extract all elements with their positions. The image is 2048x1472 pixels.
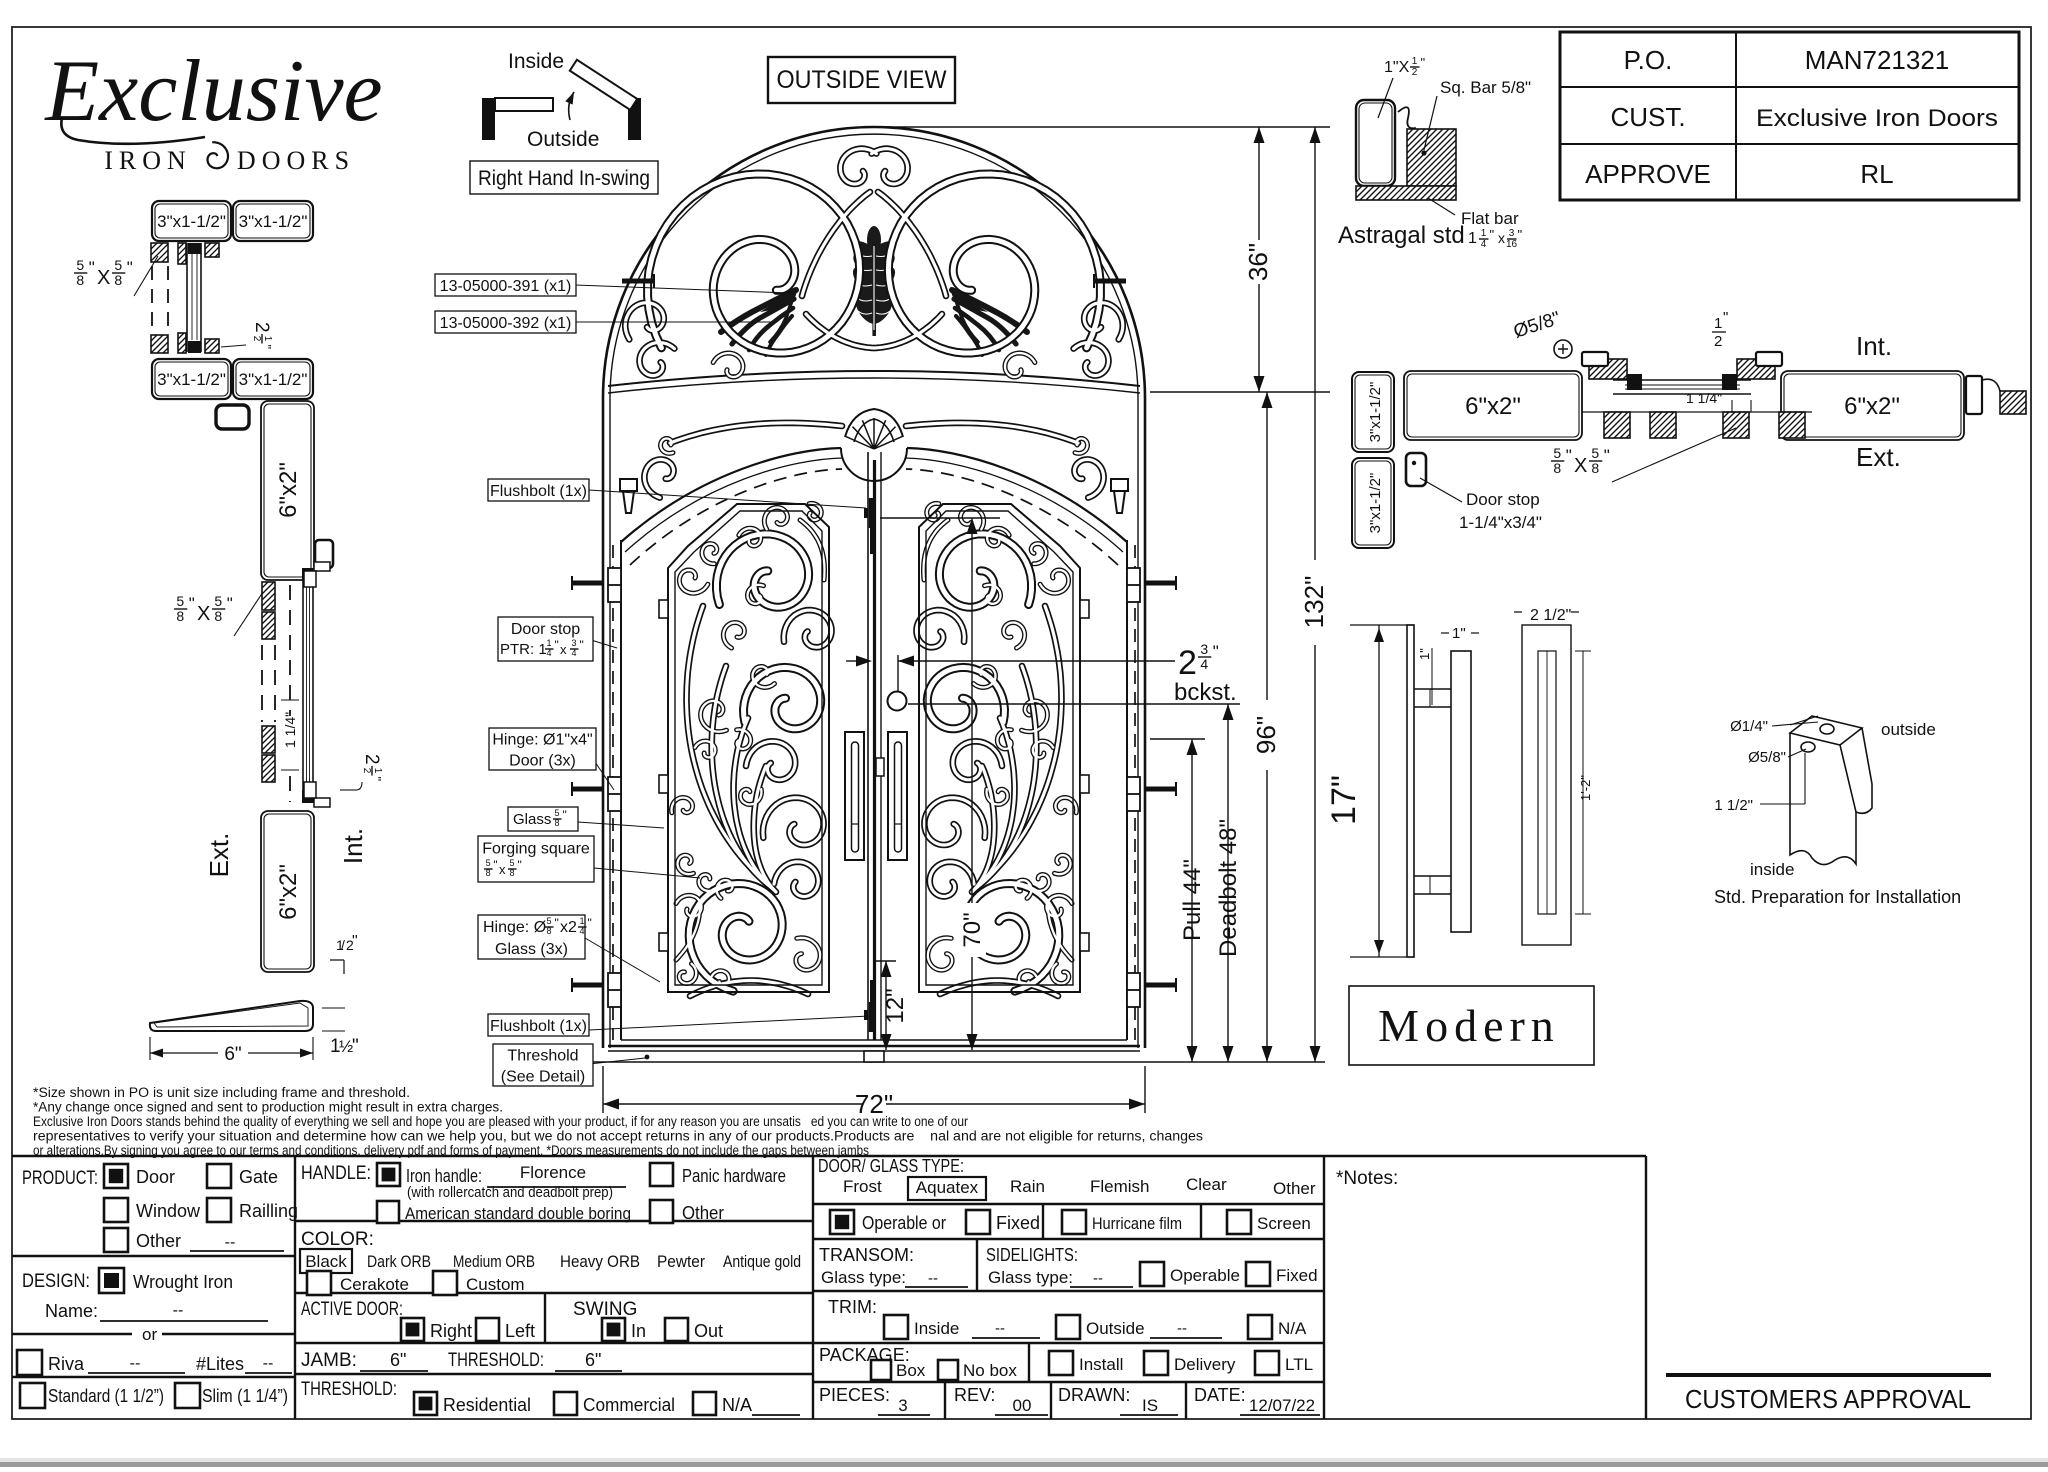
svg-text:Other: Other — [1273, 1179, 1316, 1198]
svg-text:Deadbolt 48": Deadbolt 48" — [1215, 819, 1242, 957]
svg-text:5: 5 — [114, 257, 122, 273]
svg-text:Door stop: Door stop — [1466, 490, 1540, 509]
svg-text:": " — [1518, 227, 1523, 242]
svg-text:5: 5 — [486, 858, 491, 868]
svg-text:Exclusive Iron Doors stands be: Exclusive Iron Doors stands behind the q… — [33, 1114, 968, 1129]
svg-text:": " — [588, 916, 592, 930]
svg-text:1 1/4": 1 1/4" — [282, 712, 298, 748]
svg-text:2: 2 — [1714, 333, 1722, 350]
svg-text:Pewter: Pewter — [657, 1252, 705, 1271]
svg-text:PIECES:: PIECES: — [819, 1385, 890, 1405]
svg-text:5: 5 — [214, 593, 222, 609]
svg-text:Flushbolt (1x): Flushbolt (1x) — [490, 483, 587, 500]
svg-text:5: 5 — [1553, 445, 1561, 461]
svg-text:TRIM:: TRIM: — [828, 1297, 877, 1317]
svg-text:X: X — [197, 603, 210, 625]
svg-text:70": 70" — [959, 912, 986, 947]
svg-text:X: X — [97, 267, 110, 289]
svg-text:": " — [1213, 642, 1219, 661]
svg-text:PRODUCT:: PRODUCT: — [22, 1168, 98, 1189]
svg-text:": " — [1490, 227, 1495, 242]
svg-text:1: 1 — [372, 768, 383, 774]
svg-text:Residential: Residential — [443, 1395, 531, 1415]
svg-text:Hinge: Ø: Hinge: Ø — [483, 919, 546, 936]
svg-text:16: 16 — [1506, 239, 1518, 250]
svg-text:6": 6" — [224, 1044, 241, 1065]
svg-text:Glass (3x): Glass (3x) — [495, 941, 568, 958]
svg-text:DATE:: DATE: — [1194, 1385, 1246, 1405]
svg-text:Flemish: Flemish — [1090, 1177, 1150, 1196]
svg-text:36": 36" — [1243, 243, 1273, 281]
svg-text:Glass type:: Glass type: — [821, 1268, 906, 1287]
svg-text:3"x1-1/2": 3"x1-1/2" — [239, 370, 308, 389]
svg-text:Heavy ORB: Heavy ORB — [560, 1252, 640, 1271]
svg-text:Panic hardware: Panic hardware — [682, 1166, 786, 1186]
svg-text:Aquatex: Aquatex — [916, 1178, 979, 1197]
svg-text:1: 1 — [1468, 230, 1477, 247]
svg-text:Dark ORB: Dark ORB — [367, 1252, 431, 1271]
svg-text:4: 4 — [546, 648, 551, 658]
svg-text:American standard double borin: American standard double boring — [405, 1204, 631, 1223]
svg-text:--: -- — [1093, 1270, 1103, 1287]
svg-text:Antique gold: Antique gold — [723, 1252, 801, 1271]
svg-text:LTL: LTL — [1285, 1355, 1313, 1374]
svg-text:Railling: Railling — [239, 1201, 298, 1221]
svg-text:Other: Other — [682, 1203, 724, 1223]
svg-text:Box: Box — [896, 1361, 926, 1380]
svg-text:CUST.: CUST. — [1610, 102, 1685, 132]
svg-text:12/07/22: 12/07/22 — [1249, 1396, 1315, 1415]
svg-text:17": 17" — [1325, 775, 1363, 825]
svg-text:Black: Black — [305, 1252, 347, 1271]
svg-text:Standard (1 1/2”): Standard (1 1/2”) — [48, 1386, 164, 1406]
svg-text:13-05000-392 (x1): 13-05000-392 (x1) — [440, 315, 572, 332]
svg-text:Door (3x): Door (3x) — [509, 752, 576, 769]
svg-text:Delivery: Delivery — [1174, 1355, 1236, 1374]
svg-text:Other: Other — [136, 1231, 181, 1251]
svg-text:Hurricane film: Hurricane film — [1092, 1214, 1182, 1233]
svg-text:*Notes:: *Notes: — [1336, 1168, 1398, 1189]
svg-text:12": 12" — [882, 988, 909, 1023]
svg-text:Inside: Inside — [914, 1319, 959, 1338]
svg-text:Rain: Rain — [1010, 1177, 1045, 1196]
svg-text:Door stop: Door stop — [511, 621, 580, 638]
svg-text:#Lites: #Lites — [196, 1354, 244, 1374]
svg-text:8: 8 — [509, 868, 514, 878]
svg-text:Custom: Custom — [466, 1275, 525, 1294]
svg-text:x: x — [499, 862, 506, 877]
svg-text:": " — [1421, 55, 1426, 70]
svg-text:Right Hand In-swing: Right Hand In-swing — [478, 167, 650, 190]
svg-text:": " — [1566, 446, 1572, 465]
svg-text:*Any change once signed and se: *Any change once signed and sent to prod… — [33, 1100, 503, 1115]
svg-text:PTR: 1: PTR: 1 — [500, 641, 547, 658]
svg-text:8: 8 — [554, 818, 559, 828]
svg-text:Ext.: Ext. — [1856, 442, 1901, 472]
svg-text:Name:: Name: — [45, 1301, 98, 1321]
svg-text:1-1/4"x3/4": 1-1/4"x3/4" — [1459, 513, 1542, 532]
svg-text:Frost: Frost — [843, 1177, 882, 1196]
svg-text:SIDELIGHTS:: SIDELIGHTS: — [986, 1245, 1078, 1265]
svg-text:TRANSOM:: TRANSOM: — [819, 1245, 914, 1265]
svg-text:Int.: Int. — [338, 828, 368, 864]
svg-text:00: 00 — [1013, 1396, 1032, 1415]
svg-text:IRON: IRON — [104, 146, 192, 175]
svg-text:IS: IS — [1142, 1396, 1158, 1415]
svg-text:Door: Door — [136, 1167, 175, 1187]
svg-text:3"x1-1/2": 3"x1-1/2" — [157, 370, 226, 389]
svg-text:--: -- — [173, 1302, 184, 1319]
svg-text:Ø1/4": Ø1/4" — [1730, 718, 1768, 735]
svg-text:Right: Right — [430, 1321, 472, 1341]
svg-text:": " — [1604, 446, 1610, 465]
svg-text:": " — [555, 916, 559, 930]
svg-text:OUTSIDE VIEW: OUTSIDE VIEW — [777, 66, 947, 94]
svg-text:Threshold: Threshold — [507, 1047, 578, 1064]
svg-text:8: 8 — [114, 272, 122, 288]
svg-text:REV:: REV: — [954, 1385, 995, 1405]
svg-text:Install: Install — [1079, 1355, 1123, 1374]
svg-text:--: -- — [130, 1355, 141, 1372]
svg-text:P.O.: P.O. — [1624, 45, 1673, 75]
svg-text:132": 132" — [1299, 576, 1329, 629]
svg-text:6": 6" — [585, 1350, 601, 1370]
svg-text:2: 2 — [251, 322, 272, 333]
svg-text:--: -- — [1177, 1320, 1187, 1337]
svg-text:or: or — [142, 1325, 157, 1344]
svg-text:Int.: Int. — [1856, 331, 1892, 361]
svg-text:1 1/2": 1 1/2" — [1714, 797, 1753, 814]
svg-text:Flat bar: Flat bar — [1461, 209, 1519, 228]
svg-text:--: -- — [928, 1270, 938, 1287]
svg-text:1'-2": 1'-2" — [1578, 775, 1593, 801]
svg-text:ACTIVE DOOR:: ACTIVE DOOR: — [301, 1299, 403, 1320]
svg-text:3: 3 — [1200, 641, 1208, 657]
svg-text:representatives to verify your: representatives to verify your situation… — [33, 1129, 1203, 1144]
svg-text:": " — [259, 345, 274, 350]
svg-text:bckst.: bckst. — [1174, 679, 1237, 706]
svg-text:2: 2 — [1412, 67, 1418, 78]
svg-text:": " — [227, 594, 233, 613]
svg-text:Std. Preparation for Installat: Std. Preparation for Installation — [1714, 887, 1961, 907]
svg-text:Inside: Inside — [508, 50, 564, 73]
svg-text:Glass: Glass — [513, 811, 551, 828]
svg-text:Ø5/8": Ø5/8" — [1748, 749, 1786, 766]
svg-text:x: x — [560, 642, 567, 657]
svg-text:96": 96" — [1251, 716, 1281, 754]
svg-text:": " — [580, 638, 584, 652]
svg-text:RL: RL — [1860, 159, 1893, 189]
svg-text:8: 8 — [76, 272, 84, 288]
svg-text:x: x — [1498, 230, 1505, 246]
svg-text:8: 8 — [176, 608, 184, 624]
svg-text:THRESHOLD:: THRESHOLD: — [448, 1350, 544, 1371]
svg-text:--: -- — [225, 1234, 236, 1251]
svg-text:(See Detail): (See Detail) — [501, 1068, 585, 1085]
svg-text:Outside: Outside — [1086, 1319, 1145, 1338]
svg-text:4: 4 — [1481, 239, 1487, 250]
svg-text:2: 2 — [251, 336, 262, 342]
svg-text:1: 1 — [546, 638, 551, 648]
svg-text:Cerakote: Cerakote — [340, 1275, 409, 1294]
svg-text:2: 2 — [361, 768, 372, 774]
svg-text:": " — [127, 258, 133, 277]
svg-text:1: 1 — [262, 336, 273, 342]
svg-text:Ext.: Ext. — [204, 833, 234, 878]
svg-text:THRESHOLD:: THRESHOLD: — [301, 1379, 397, 1400]
svg-text:HANDLE:: HANDLE: — [301, 1163, 371, 1184]
svg-text:Astragal std: Astragal std — [1338, 222, 1465, 249]
svg-text:5: 5 — [1591, 445, 1599, 461]
svg-text:4: 4 — [579, 926, 584, 936]
svg-text:2: 2 — [361, 754, 382, 765]
svg-text:Glass type:: Glass type: — [988, 1268, 1073, 1287]
svg-text:N/A: N/A — [1278, 1319, 1307, 1338]
svg-text:MAN721321: MAN721321 — [1805, 45, 1950, 75]
svg-text:3"x1-1/2": 3"x1-1/2" — [157, 212, 226, 231]
svg-text:COLOR:: COLOR: — [301, 1229, 374, 1250]
svg-text:5: 5 — [176, 593, 184, 609]
svg-text:3"x1-1/2": 3"x1-1/2" — [239, 212, 308, 231]
svg-text:5: 5 — [76, 257, 84, 273]
svg-text:(with rollercatch and deadbolt: (with rollercatch and deadbolt prep) — [407, 1184, 613, 1201]
svg-text:1: 1 — [1714, 315, 1722, 332]
svg-text:": " — [189, 594, 195, 613]
svg-text:Medium ORB: Medium ORB — [453, 1252, 535, 1271]
svg-text:1": 1" — [1452, 625, 1466, 642]
svg-text:Exclusive Iron Doors: Exclusive Iron Doors — [1756, 105, 1998, 132]
svg-text:6"x2": 6"x2" — [275, 864, 302, 920]
svg-text:DOOR/ GLASS TYPE:: DOOR/ GLASS TYPE: — [818, 1156, 964, 1176]
svg-text:8: 8 — [486, 868, 491, 878]
svg-text:*Size shown in PO is unit size: *Size shown in PO is unit size including… — [33, 1085, 410, 1100]
svg-text:Operable: Operable — [1170, 1266, 1240, 1285]
svg-text:Clear: Clear — [1186, 1175, 1227, 1194]
svg-text:/: / — [341, 937, 345, 953]
svg-text:1 1/4": 1 1/4" — [1686, 390, 1722, 406]
svg-text:In: In — [631, 1321, 646, 1341]
svg-text:Outside: Outside — [527, 128, 599, 151]
svg-text:3: 3 — [1509, 228, 1515, 239]
svg-text:JAMB:: JAMB: — [301, 1350, 357, 1371]
svg-text:--: -- — [263, 1355, 274, 1372]
svg-text:Pull 44": Pull 44" — [1179, 859, 1206, 941]
svg-text:8: 8 — [546, 926, 551, 936]
svg-text:1: 1 — [1481, 228, 1487, 239]
svg-text:13-05000-391 (x1): 13-05000-391 (x1) — [440, 278, 572, 295]
svg-text:Commercial: Commercial — [583, 1395, 675, 1415]
svg-text:Left: Left — [505, 1321, 535, 1341]
svg-text:Slim (1 1/4”): Slim (1 1/4”) — [202, 1386, 288, 1406]
svg-text:6"x2": 6"x2" — [1465, 393, 1521, 420]
svg-text:N/A: N/A — [722, 1395, 752, 1415]
svg-text:4: 4 — [571, 648, 576, 658]
svg-text:Screen: Screen — [1257, 1214, 1311, 1233]
svg-text:Fixed: Fixed — [1276, 1266, 1318, 1285]
svg-text:5: 5 — [509, 858, 514, 868]
svg-text:3: 3 — [898, 1396, 907, 1415]
svg-text:--: -- — [995, 1320, 1005, 1337]
svg-text:": " — [352, 933, 358, 950]
svg-text:inside: inside — [1750, 860, 1794, 879]
svg-text:x2: x2 — [560, 919, 577, 936]
svg-text:Out: Out — [694, 1321, 723, 1341]
svg-text:X: X — [1574, 455, 1587, 477]
svg-text:": " — [369, 777, 384, 782]
svg-text:Riva: Riva — [48, 1354, 85, 1374]
svg-text:8: 8 — [214, 608, 222, 624]
svg-text:Fixed: Fixed — [996, 1213, 1040, 1233]
svg-text:Gate: Gate — [239, 1167, 278, 1187]
svg-text:Exclusive: Exclusive — [43, 43, 382, 140]
svg-text:8: 8 — [1553, 460, 1561, 476]
svg-text:Operable or: Operable or — [862, 1213, 946, 1233]
svg-text:2: 2 — [1178, 644, 1197, 682]
svg-text:Iron handle:: Iron handle: — [406, 1166, 482, 1186]
svg-text:outside: outside — [1881, 720, 1936, 739]
svg-text:": " — [493, 858, 497, 872]
svg-text:DESIGN:: DESIGN: — [22, 1271, 90, 1292]
svg-text:6": 6" — [390, 1350, 406, 1370]
svg-text:": " — [352, 1036, 359, 1057]
svg-text:DOORS: DOORS — [237, 146, 355, 175]
svg-text:Hinge: Ø1"x4": Hinge: Ø1"x4" — [492, 731, 592, 748]
svg-text:6"x2": 6"x2" — [1844, 393, 1900, 420]
svg-text:8: 8 — [1591, 460, 1599, 476]
svg-text:CUSTOMERS APPROVAL: CUSTOMERS APPROVAL — [1685, 1384, 1971, 1414]
svg-text:3"x1-1/2": 3"x1-1/2" — [1367, 382, 1384, 443]
svg-text:1: 1 — [1412, 56, 1418, 67]
svg-text:2 1/2": 2 1/2" — [1530, 607, 1571, 624]
svg-text:": " — [563, 808, 567, 822]
svg-text:": " — [518, 858, 522, 872]
svg-text:4: 4 — [1200, 656, 1208, 672]
svg-text:1": 1" — [1417, 648, 1432, 660]
svg-text:Sq. Bar 5/8": Sq. Bar 5/8" — [1440, 78, 1531, 97]
svg-text:": " — [555, 638, 559, 652]
svg-text:Modern: Modern — [1378, 1000, 1560, 1051]
svg-text:3: 3 — [571, 638, 576, 648]
svg-text:": " — [1723, 309, 1728, 326]
svg-text:5: 5 — [546, 916, 551, 926]
svg-text:6"x2": 6"x2" — [275, 462, 302, 518]
svg-text:APPROVE: APPROVE — [1585, 159, 1711, 189]
svg-text:Flushbolt (1x): Flushbolt (1x) — [490, 1018, 587, 1035]
svg-text:5: 5 — [554, 808, 559, 818]
svg-text:1: 1 — [579, 916, 584, 926]
svg-text:Forging square: Forging square — [482, 840, 590, 857]
svg-text:Florence: Florence — [520, 1163, 586, 1182]
svg-text:": " — [89, 258, 95, 277]
svg-text:DRAWN:: DRAWN: — [1058, 1385, 1130, 1405]
svg-text:1"X: 1"X — [1384, 59, 1410, 76]
svg-text:3"x1-1/2": 3"x1-1/2" — [1367, 473, 1384, 534]
svg-text:Window: Window — [136, 1201, 201, 1221]
svg-text:Wrought Iron: Wrought Iron — [133, 1272, 233, 1292]
svg-text:No box: No box — [963, 1361, 1017, 1380]
